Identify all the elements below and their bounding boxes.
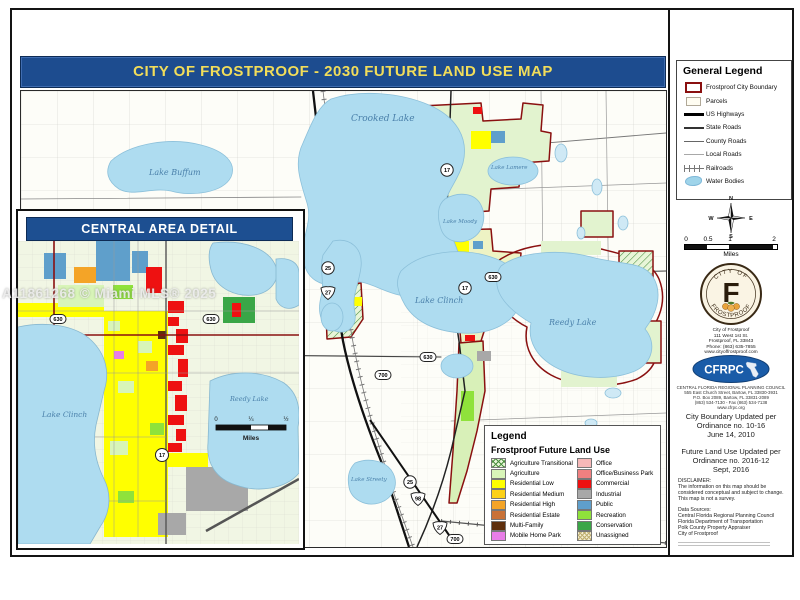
flu-legend-item: Residential Low [491, 479, 573, 489]
flu-legend-right-column: Office Office/Business Park Commercial [577, 458, 654, 541]
lake-moody-label: Lake Moody [442, 219, 478, 225]
general-legend-item: County Roads [681, 135, 787, 148]
general-legend-item: Parcels [681, 94, 787, 107]
flu-legend-item: Agriculture Transitional [491, 458, 573, 468]
flu-legend-item: Agriculture [491, 468, 573, 478]
svg-text:½: ½ [283, 416, 288, 423]
land-use-update-note: Future Land Use Updated perOrdinance no.… [674, 447, 788, 474]
general-legend-items: Frostproof City Boundary Parcels US High… [681, 81, 787, 188]
flu-legend-item: Office/Business Park [577, 468, 654, 478]
legend-label: County Roads [706, 138, 747, 145]
scale-bar-segments [684, 244, 778, 250]
land-use-label: Conservation [596, 522, 632, 529]
svg-text:98: 98 [415, 497, 421, 503]
lake-lamere [488, 157, 538, 185]
sr17-shield-2: 17 [459, 282, 471, 294]
sr25-shield: 25 [322, 262, 334, 274]
svg-text:630: 630 [206, 317, 215, 323]
note-line: City Boundary Updated per [674, 412, 788, 421]
land-use-swatch [577, 479, 592, 489]
land-use-label: Office/Business Park [596, 470, 653, 477]
land-use-swatch [577, 521, 592, 531]
inset-reedy-lake-label: Reedy Lake [229, 395, 269, 403]
svg-text:27: 27 [325, 291, 331, 297]
flu-legend-item: Public [577, 500, 654, 510]
sr630-shield-2: 630 [420, 353, 436, 362]
general-legend-item: US Highways [681, 108, 787, 121]
fine-print-placeholder [678, 541, 770, 546]
general-legend-title: General Legend [683, 65, 787, 77]
legend-symbol [681, 141, 706, 142]
flu-legend-item: Residential Estate [491, 510, 573, 520]
flu-legend-item: Residential Medium [491, 489, 573, 499]
data-source-line: City of Frostproof [678, 531, 786, 537]
lake-lamere-label: Lake Lamere [490, 165, 528, 171]
cfrpc-address-line: www.cfrpc.org [674, 406, 788, 411]
data-sources-block: Data Sources: Central Florida Regional P… [678, 507, 786, 537]
land-use-swatch [491, 500, 506, 510]
flu-legend-item: Unassigned [577, 531, 654, 541]
legend-label: State Roads [706, 124, 741, 131]
svg-text:630: 630 [53, 317, 62, 323]
inset-reedy-lake [208, 373, 299, 489]
svg-text:Miles: Miles [243, 435, 260, 442]
land-use-swatch [491, 510, 506, 520]
svg-text:17: 17 [462, 286, 468, 292]
general-legend: General Legend Frostproof City Boundary … [676, 60, 792, 200]
legend-label: US Highways [706, 111, 744, 118]
scale-unit: Miles [684, 251, 778, 258]
compass-star [717, 203, 745, 233]
svg-text:25: 25 [407, 480, 413, 486]
flu-legend-item: Residential High [491, 500, 573, 510]
land-use-label: Residential Estate [510, 512, 560, 519]
lake-clinch-label: Lake Clinch [414, 296, 463, 305]
general-legend-item: Local Roads [681, 148, 787, 161]
land-use-label: Multi-Family [510, 522, 543, 529]
flu-legend-title: Legend [491, 431, 654, 442]
svg-text:17: 17 [444, 168, 450, 174]
legend-label: Water Bodies [706, 178, 744, 185]
legend-symbol [681, 154, 706, 155]
note-line: Ordinance no. 10-16 [674, 421, 788, 430]
note-line: Future Land Use Updated per [674, 447, 788, 456]
cfrpc-logo: CFRPC [691, 354, 771, 384]
cfrpc-address-block: CENTRAL FLORIDA REGIONAL PLANNING COUNCI… [674, 386, 788, 411]
land-use-swatch [491, 521, 506, 531]
land-use-label: Unassigned [596, 532, 629, 539]
compass-west: W [708, 216, 714, 222]
inset-title: CENTRAL AREA DETAIL [26, 217, 293, 241]
flu-legend: Legend Frostproof Future Land Use Agricu… [484, 425, 661, 545]
lake-buffum-label: Lake Buffum [148, 168, 201, 177]
land-use-swatch [577, 500, 592, 510]
svg-text:630: 630 [423, 355, 432, 361]
note-line: Ordinance no. 2016-12 [674, 456, 788, 465]
land-use-swatch [491, 489, 506, 499]
legend-symbol [681, 176, 706, 186]
compass-east: E [749, 216, 753, 222]
land-use-swatch [577, 531, 592, 541]
inset-sr17-shield: 17 [156, 449, 169, 462]
city-seal: CITY OF FROSTPROOF F [699, 262, 763, 326]
land-use-label: Recreation [596, 512, 626, 519]
legend-symbol [681, 97, 706, 106]
sr17-shield: 17 [441, 164, 453, 176]
legend-label: Local Roads [706, 151, 742, 158]
legend-label: Railroads [706, 165, 733, 172]
svg-text:17: 17 [159, 453, 165, 459]
compass-north: N [729, 196, 733, 202]
svg-text:25: 25 [325, 266, 331, 272]
svg-text:630: 630 [488, 275, 497, 281]
land-use-label: Agriculture [510, 470, 540, 477]
general-legend-item: Frostproof City Boundary [681, 81, 787, 94]
land-use-swatch [577, 489, 592, 499]
land-use-swatch [491, 479, 506, 489]
land-use-label: Residential High [510, 501, 555, 508]
lake-moody [438, 194, 483, 242]
legend-label: Parcels [706, 98, 727, 105]
flu-legend-item: Mobile Home Park [491, 531, 573, 541]
legend-symbol [681, 127, 706, 129]
land-use-label: Agriculture Transitional [510, 460, 573, 467]
land-use-label: Residential Medium [510, 491, 564, 498]
legend-label: Frostproof City Boundary [706, 84, 777, 91]
land-use-label: Commercial [596, 480, 629, 487]
central-area-detail-inset: Lake Clinch Reedy Lake 0 ¼ ½ Miles 630 6… [16, 209, 305, 550]
land-use-swatch [491, 531, 506, 541]
land-use-label: Residential Low [510, 480, 554, 487]
sr700-shield: 700 [375, 371, 391, 380]
compass-rose: N S E W [670, 193, 792, 233]
flu-legend-item: Office [577, 458, 654, 468]
legend-symbol [681, 82, 706, 93]
crooked-lake-label: Crooked Lake [351, 114, 415, 124]
mls-watermark: A11861268 © Miami MLS® 2025 [2, 286, 216, 301]
map-title-banner: CITY OF FROSTPROOF - 2030 FUTURE LAND US… [20, 56, 666, 88]
land-use-swatch [577, 458, 592, 468]
land-use-swatch [577, 510, 592, 520]
legend-symbol [681, 165, 706, 172]
land-use-label: Public [596, 501, 613, 508]
flu-legend-item: Multi-Family [491, 520, 573, 530]
general-legend-item: Railroads [681, 161, 787, 174]
inset-sr630-shield-2: 630 [203, 315, 219, 324]
inset-lake-clinch-label: Lake Clinch [41, 410, 87, 419]
legend-symbol [681, 113, 706, 116]
disclaimer-line: This map is not a survey. [678, 496, 786, 502]
general-legend-item: Water Bodies [681, 175, 787, 188]
svg-text:700: 700 [378, 373, 387, 379]
right-panel: General Legend Frostproof City Boundary … [668, 10, 792, 555]
sr25-shield-2: 25 [404, 476, 416, 488]
flu-legend-item: Industrial [577, 489, 654, 499]
note-line: Sept, 2016 [674, 465, 788, 474]
svg-text:27: 27 [437, 526, 443, 532]
map-sheet-page: CITY OF FROSTPROOF - 2030 FUTURE LAND US… [0, 0, 800, 600]
land-use-swatch [491, 469, 506, 479]
reedy-lake-label: Reedy Lake [548, 318, 597, 327]
boundary-update-note: City Boundary Updated perOrdinance no. 1… [674, 412, 788, 439]
land-use-label: Industrial [596, 491, 621, 498]
sr700-shield-2: 700 [447, 535, 463, 544]
cfrpc-acronym: CFRPC [704, 365, 744, 377]
flu-legend-subtitle: Frostproof Future Land Use [491, 445, 654, 455]
sr630-shield: 630 [485, 273, 501, 282]
scale-ticks: 0 0.5 1 2 [684, 236, 778, 244]
land-use-swatch [577, 469, 592, 479]
flu-legend-item: Conservation [577, 520, 654, 530]
land-use-label: Office [596, 460, 612, 467]
general-legend-item: State Roads [681, 121, 787, 134]
flu-legend-left-column: Agriculture Transitional Agriculture Res… [491, 458, 573, 541]
land-use-label: Mobile Home Park [510, 532, 561, 539]
flu-legend-item: Commercial [577, 479, 654, 489]
disclaimer-block: DISCLAIMER: The information on this map … [678, 478, 786, 502]
map-sheet: CITY OF FROSTPROOF - 2030 FUTURE LAND US… [10, 8, 794, 557]
note-line: June 14, 2010 [674, 430, 788, 439]
flu-legend-item: Recreation [577, 510, 654, 520]
scale-bar: 0 0.5 1 2 Miles [684, 236, 778, 262]
land-use-swatch [491, 458, 506, 468]
lake-streety-label: Lake Streety [350, 477, 388, 483]
svg-text:700: 700 [450, 537, 459, 543]
city-contact-block: City of Frostproof111 West 1st St.Frostp… [674, 328, 788, 356]
inset-sr630-shield: 630 [50, 315, 66, 324]
